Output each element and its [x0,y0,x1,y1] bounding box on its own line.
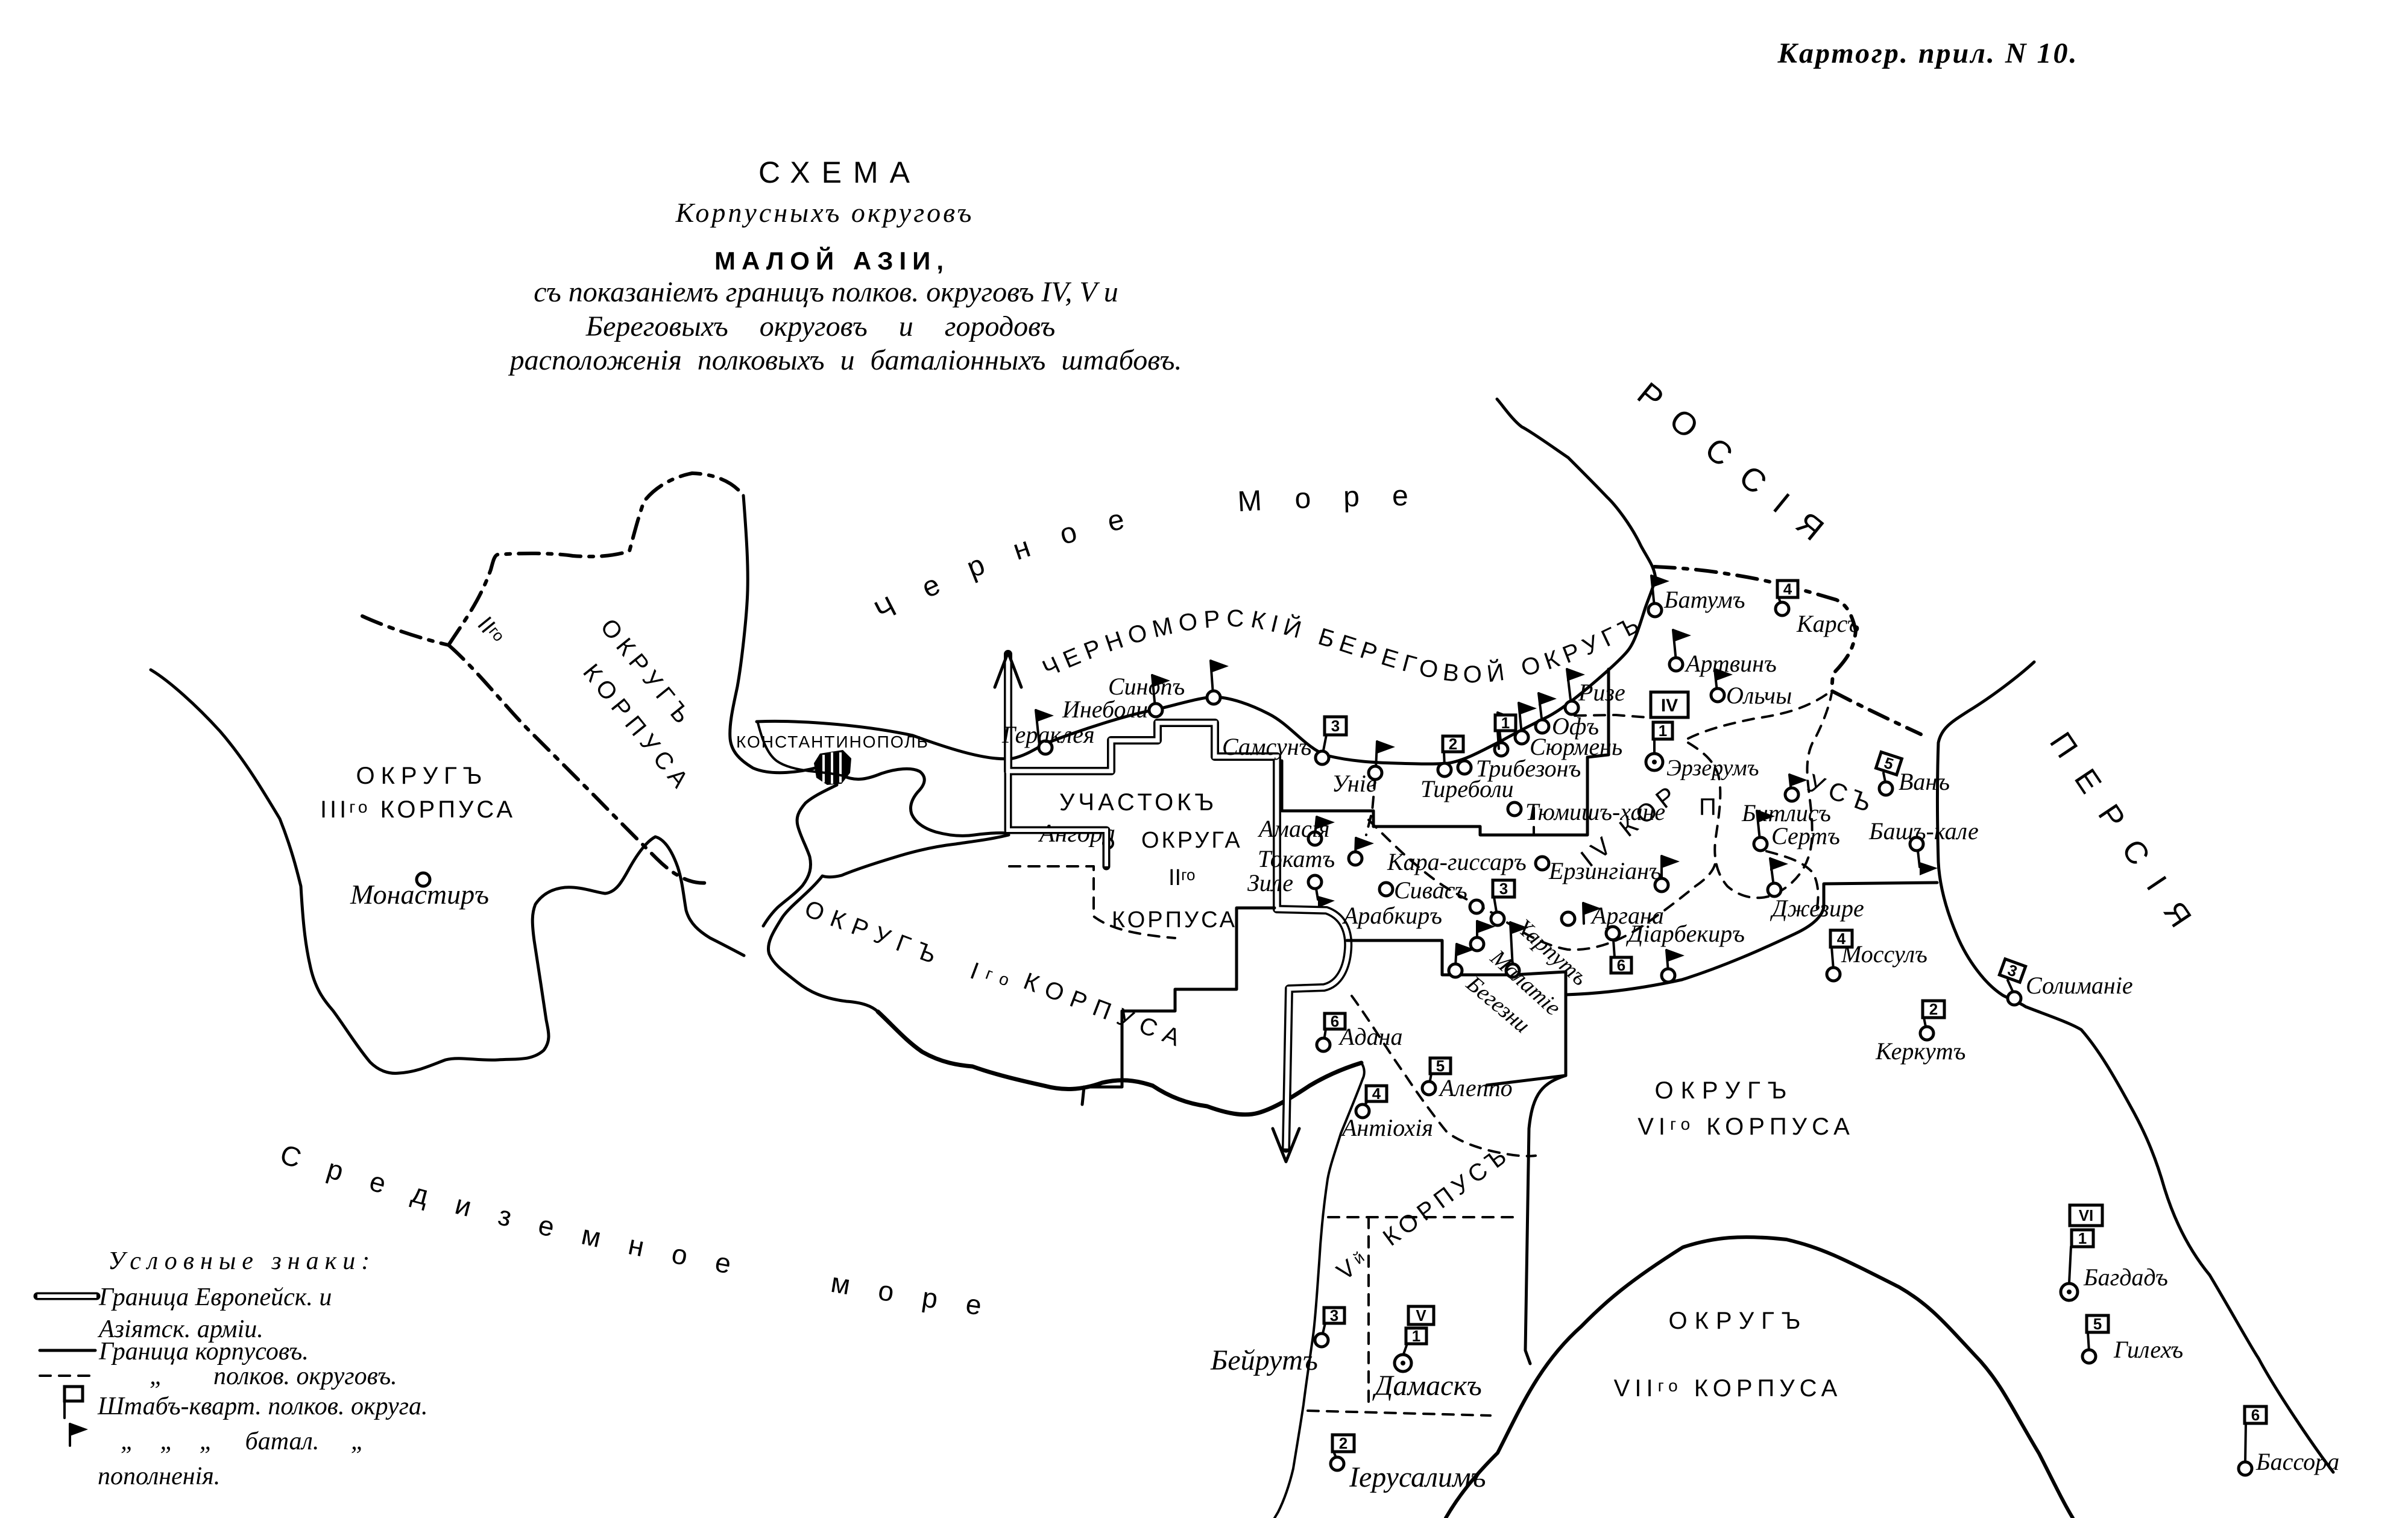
svg-text:Монастиръ: Монастиръ [350,879,489,910]
svg-text:П: П [1699,794,1716,820]
svg-text:ОКРУГА: ОКРУГА [1141,828,1243,853]
svg-text:Самсунъ: Самсунъ [1222,733,1311,760]
svg-text:Токатъ: Токатъ [1258,845,1335,872]
svg-text:Граница корпусовъ.: Граница корпусовъ. [98,1338,309,1365]
svg-text:Ерзингіанъ: Ерзингіанъ [1548,857,1662,884]
svg-text:Карсъ: Карсъ [1796,610,1860,637]
svg-text:3: 3 [1331,717,1340,735]
svg-text:Береговыхъ округовъ и город: Береговыхъ округовъ и городовъ [585,310,1055,342]
svg-text:V: V [1416,1306,1426,1324]
svg-text:Алеппо: Алеппо [1438,1074,1513,1101]
svg-text:Сивасъ: Сивасъ [1394,877,1467,904]
svg-text:пополненія.: пополненія. [98,1463,220,1490]
svg-text:КОНСТАНТИНОПОЛЬ: КОНСТАНТИНОПОЛЬ [736,732,929,751]
svg-text:Бейрутъ: Бейрутъ [1210,1344,1318,1376]
svg-text:ОКРУГЪ: ОКРУГЪ [1669,1308,1808,1334]
svg-text:„ „ „ батал. „: „ „ „ батал. „ [121,1428,365,1455]
svg-text:Амасія: Амасія [1257,815,1329,842]
svg-text:Граница Европейск. и: Граница Европейск. и [98,1283,332,1311]
svg-text:Керкутъ: Керкутъ [1875,1038,1965,1065]
svg-text:„: „ [150,1362,163,1390]
svg-text:Картогр. прил. N 10.: Картогр. прил. N 10. [1777,37,2078,69]
svg-text:ОКРУГЪ: ОКРУГЪ [1655,1077,1794,1104]
svg-text:Антіохія: Антіохія [1340,1114,1433,1141]
svg-text:МАЛОЙ АЗІИ,: МАЛОЙ АЗІИ, [714,246,950,275]
svg-text:5: 5 [2093,1315,2102,1333]
svg-text:Солиманіе: Солиманіе [2026,972,2133,999]
svg-text:1: 1 [1412,1327,1420,1345]
svg-text:Синопъ: Синопъ [1108,673,1185,700]
svg-text:Условные знаки:: Условные знаки: [108,1247,376,1275]
svg-text:съ показаніемъ границъ полков.: съ показаніемъ границъ полков. округовъ … [534,276,1118,308]
svg-text:5: 5 [1436,1057,1445,1075]
svg-text:6: 6 [1617,956,1625,974]
svg-text:Ризе: Ризе [1578,679,1625,706]
svg-text:6: 6 [2251,1406,2260,1424]
svg-text:2: 2 [1339,1434,1347,1452]
svg-text:Адана: Адана [1338,1023,1403,1050]
svg-text:VI: VI [2079,1206,2094,1224]
svg-text:Діарбекиръ: Діарбекиръ [1625,920,1745,947]
svg-text:полков. округовъ.: полков. округовъ. [213,1362,397,1390]
svg-text:1: 1 [2078,1229,2087,1247]
svg-text:Бассора: Бассора [2255,1448,2339,1475]
svg-text:Башъ-кале: Башъ-кале [1868,817,1979,845]
svg-text:4: 4 [1783,580,1792,598]
svg-text:Артвинъ: Артвинъ [1684,650,1777,677]
svg-text:Уніе: Уніе [1332,770,1377,797]
svg-text:Эрзерумъ: Эрзерумъ [1666,755,1759,781]
svg-text:Штабъ-кварт. полков. округа.: Штабъ-кварт. полков. округа. [97,1393,428,1420]
svg-text:4: 4 [1372,1085,1381,1103]
svg-text:IV: IV [1661,696,1678,716]
svg-text:Джезире: Джезире [1770,895,1864,922]
svg-text:Батумъ: Батумъ [1663,586,1745,613]
svg-text:Моссулъ: Моссулъ [1841,940,1927,968]
svg-text:3: 3 [1499,880,1508,898]
svg-text:Ванъ: Ванъ [1899,768,1950,795]
svg-text:Кара-гиссаръ: Кара-гиссаръ [1387,848,1527,875]
svg-text:Гераклея: Гераклея [1001,721,1095,748]
svg-text:Корпусныхъ округовъ: Корпусныхъ округовъ [675,197,974,228]
svg-text:СХЕМА: СХЕМА [758,156,921,189]
svg-text:Іерусалимъ: Іерусалимъ [1349,1461,1486,1493]
svg-text:6: 6 [1331,1012,1339,1030]
svg-text:2: 2 [1449,735,1457,753]
svg-text:КОРПУСА: КОРПУСА [1112,907,1237,933]
svg-text:Тюмишъ-хане: Тюмишъ-хане [1525,798,1665,825]
svg-text:расположенія полковыхъ и ба: расположенія полковыхъ и баталіонныхъ шт… [508,344,1182,376]
svg-text:3: 3 [1330,1306,1338,1324]
svg-text:1: 1 [1501,714,1510,732]
svg-text:Дамаскъ: Дамаскъ [1372,1370,1482,1402]
svg-text:Арабкиръ: Арабкиръ [1341,902,1442,929]
svg-text:2: 2 [1929,1000,1938,1018]
svg-text:Сертъ: Сертъ [1771,822,1840,849]
svg-text:Офъ: Офъ [1552,713,1599,740]
svg-text:Ольчы: Ольчы [1726,682,1792,709]
svg-text:УЧАСТОКЪ: УЧАСТОКЪ [1059,789,1217,816]
svg-text:Багдадъ: Багдадъ [2083,1264,2168,1291]
svg-text:VIIго КОРПУСА: VIIго КОРПУСА [1614,1375,1842,1402]
svg-text:1: 1 [1659,722,1667,740]
svg-text:Зиле: Зиле [1247,869,1293,896]
svg-text:ОКРУГЪ: ОКРУГЪ [356,763,488,789]
svg-text:Гилехъ: Гилехъ [2113,1336,2183,1363]
